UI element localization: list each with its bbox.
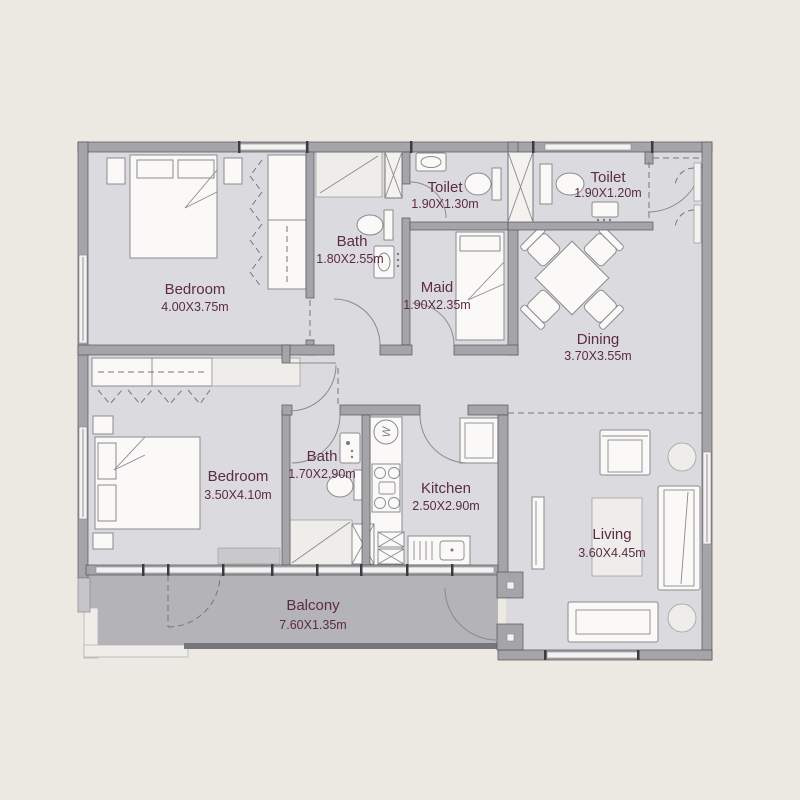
outer-wall-right <box>702 142 712 660</box>
wall-bedroom2-bath2 <box>282 410 290 565</box>
dot <box>346 441 350 445</box>
sink-icon <box>592 202 618 217</box>
dot <box>397 265 399 267</box>
fridge-icon <box>460 418 498 463</box>
room-dims: 7.60X1.35m <box>279 618 346 632</box>
tick <box>271 564 274 576</box>
toilet-tank <box>384 210 393 240</box>
tick <box>406 564 409 576</box>
room-dims: 1.90X1.30m <box>411 197 478 211</box>
wall-bedroom2-corridor <box>282 345 290 363</box>
room-dims: 2.50X2.90m <box>412 499 479 513</box>
room-name: Bedroom <box>208 468 269 485</box>
nightstand-icon <box>107 158 125 184</box>
tick <box>316 564 319 576</box>
wall-hall-top <box>454 345 518 355</box>
nightstand-icon <box>93 416 113 434</box>
column-core <box>507 582 514 589</box>
kitchen-sink-icon <box>408 536 470 565</box>
entry-closet-icon <box>694 163 701 201</box>
dresser-icon <box>218 548 280 564</box>
room-label-kitchen: Kitchen 2.50X2.90m <box>412 480 479 513</box>
room-name: Balcony <box>286 597 340 614</box>
sink-basin <box>421 157 441 168</box>
balcony-rail <box>184 643 498 649</box>
room-dims: 1.80X2.55m <box>316 252 383 266</box>
wall-bath2-kitchen <box>362 415 370 565</box>
tick <box>306 141 309 153</box>
room-dims: 1.70X2.90m <box>288 467 355 481</box>
tick <box>360 564 363 576</box>
tick <box>222 564 225 576</box>
tick <box>142 564 145 576</box>
wall-toilet1-maid <box>410 222 508 230</box>
nightstand-icon <box>93 533 113 549</box>
armchair-icon <box>600 430 650 475</box>
sink-icon <box>340 433 360 463</box>
wall-kitchen-living <box>498 415 508 575</box>
tv-bench-icon <box>568 602 658 642</box>
room-dims: 1.90X2.35m <box>403 298 470 312</box>
dot <box>351 456 353 458</box>
room-name: Toilet <box>427 179 463 196</box>
dot <box>351 450 353 452</box>
floor-plan-page: W <box>0 0 800 800</box>
side-table-icon <box>668 604 696 632</box>
pillow-icon <box>137 160 173 178</box>
room-name: Toilet <box>590 169 626 186</box>
balcony-parapet <box>84 645 188 657</box>
room-name: Living <box>592 526 631 543</box>
column-core <box>507 634 514 641</box>
wall-toilet2-dining <box>508 222 653 230</box>
tick <box>532 141 535 153</box>
wall-corridor <box>468 405 508 415</box>
room-name: Bedroom <box>165 281 226 298</box>
room-dims: 3.70X3.55m <box>564 349 631 363</box>
room-name: Bath <box>337 233 368 250</box>
dot <box>597 219 599 221</box>
room-dims: 3.60X4.45m <box>578 546 645 560</box>
wall-corridor <box>340 405 420 415</box>
toilet-icon <box>465 173 491 195</box>
toilet-icon <box>357 215 383 235</box>
room-dims: 4.00X3.75m <box>161 300 228 314</box>
wall-corridor <box>282 405 292 415</box>
wall-bedroom1-bath1 <box>306 152 314 298</box>
sliding-glass-wall <box>96 567 494 573</box>
sink-counter <box>540 164 552 204</box>
tick <box>451 564 454 576</box>
nightstand-icon <box>224 158 242 184</box>
window <box>240 144 306 150</box>
washer-label: W <box>381 425 393 437</box>
floor-plan-svg: W <box>0 0 800 800</box>
room-name: Kitchen <box>421 480 471 497</box>
side-table-icon <box>668 443 696 471</box>
dot <box>397 253 399 255</box>
tick <box>544 650 547 660</box>
room-name: Bath <box>307 448 338 465</box>
tick <box>410 141 413 153</box>
room-label-bedroom-1: Bedroom 4.00X3.75m <box>161 281 228 314</box>
balcony-parapet-left <box>78 578 90 612</box>
wall-bath1-toilet1 <box>402 152 410 184</box>
wall-bath1-maid <box>402 218 410 345</box>
tv-cabinet-icon <box>532 497 544 569</box>
wall-hall-top <box>380 345 412 355</box>
stove-icon <box>372 464 400 512</box>
room-name: Maid <box>421 279 454 296</box>
wall-hall-top <box>78 345 334 355</box>
dot <box>609 219 611 221</box>
window <box>545 144 631 150</box>
dot <box>603 219 605 221</box>
maid-room <box>456 232 504 340</box>
toilet-tank <box>492 168 501 200</box>
entry-closet-icon <box>694 205 701 243</box>
pillow-icon <box>460 236 500 251</box>
window <box>547 652 639 658</box>
pillow-icon <box>98 485 116 521</box>
room-dims: 3.50X4.10m <box>204 488 271 502</box>
tick <box>637 650 640 660</box>
room-name: Dining <box>577 331 620 348</box>
tick <box>651 141 654 153</box>
pillow-icon <box>98 443 116 479</box>
dot <box>397 259 399 261</box>
tick <box>167 564 170 576</box>
pillow-icon <box>178 160 214 178</box>
room-dims: 1.90X1.20m <box>574 186 641 200</box>
tick <box>238 141 241 153</box>
drain <box>451 549 454 552</box>
